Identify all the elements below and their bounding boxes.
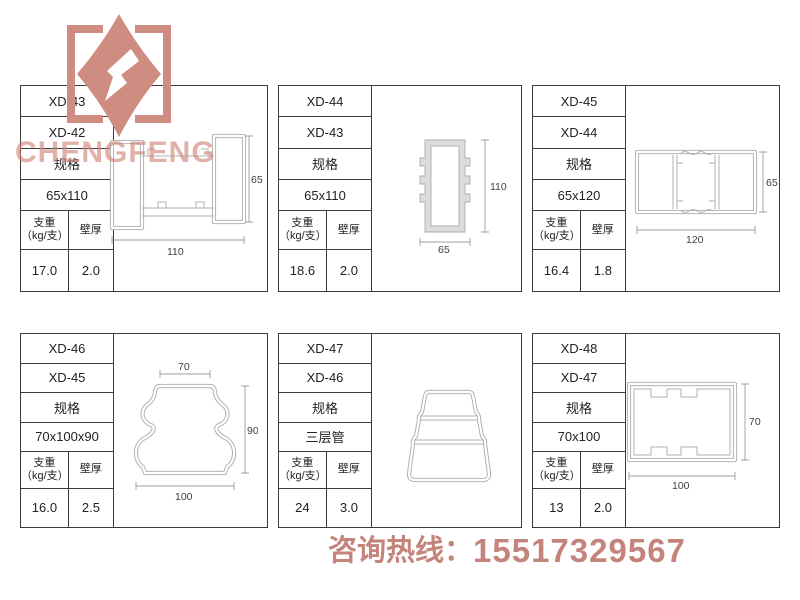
spec-label: 规格 [21, 393, 113, 423]
weight-unit-label: （kg/支） [21, 470, 68, 483]
model-secondary: XD-47 [533, 364, 625, 394]
spec-table-6: XD-48 XD-47 规格 70x100 支重（kg/支） 壁厚 13 2.0 [533, 334, 626, 527]
weight-thickness-header: 支重（kg/支） 壁厚 [279, 211, 371, 250]
size-value: 65x110 [279, 180, 371, 211]
weight-value: 24 [279, 489, 327, 527]
size-value: 70x100x90 [21, 423, 113, 453]
product-card-2: XD-44 XD-43 规格 65x110 支重（kg/支） 壁厚 18.6 2… [278, 85, 522, 292]
weight-unit-label: （kg/支） [533, 470, 580, 483]
thickness-value: 2.5 [69, 489, 113, 527]
model-primary: XD-44 [279, 86, 371, 117]
product-card-5: XD-47 XD-46 规格 三层管 支重（kg/支） 壁厚 24 3.0 [278, 333, 522, 528]
weight-thickness-values: 17.0 2.0 [21, 250, 113, 291]
spec-table-4: XD-46 XD-45 规格 70x100x90 支重（kg/支） 壁厚 16.… [21, 334, 114, 527]
weight-thickness-values: 16.4 1.8 [533, 250, 625, 291]
spec-label: 规格 [21, 149, 113, 180]
weight-label: 支重 [545, 457, 567, 470]
model-primary: XD-45 [533, 86, 625, 117]
thickness-value: 2.0 [581, 489, 625, 527]
weight-thickness-values: 18.6 2.0 [279, 250, 371, 291]
weight-thickness-header: 支重（kg/支） 壁厚 [533, 452, 625, 489]
thickness-value: 1.8 [581, 250, 625, 291]
weight-unit-label: （kg/支） [533, 230, 580, 243]
weight-label: 支重 [33, 457, 55, 470]
model-primary: XD-48 [533, 334, 625, 364]
hotline: 咨询热线：15517329567 [328, 527, 686, 570]
thickness-label: 壁厚 [69, 452, 113, 488]
dim-width: 100 [672, 480, 690, 492]
dim-width: 110 [167, 246, 184, 258]
weight-thickness-header: 支重（kg/支） 壁厚 [279, 452, 371, 489]
weight-thickness-values: 24 3.0 [279, 489, 371, 527]
spec-label: 规格 [279, 149, 371, 180]
weight-unit-label: （kg/支） [279, 230, 326, 243]
spec-label: 规格 [533, 149, 625, 180]
profile-drawing-gourd: 70 90 100 [113, 358, 258, 504]
weight-unit-label: （kg/支） [279, 470, 326, 483]
dim-width: 120 [686, 234, 704, 246]
thickness-label: 壁厚 [327, 452, 371, 488]
thickness-label: 壁厚 [327, 211, 371, 249]
dim-width: 100 [175, 491, 193, 503]
weight-value: 17.0 [21, 250, 69, 291]
dim-height: 110 [490, 181, 507, 193]
product-card-6: XD-48 XD-47 规格 70x100 支重（kg/支） 壁厚 13 2.0… [532, 333, 780, 528]
weight-label: 支重 [545, 217, 567, 230]
weight-label: 支重 [291, 457, 313, 470]
size-value: 65x110 [21, 180, 113, 211]
weight-label: 支重 [33, 217, 55, 230]
weight-thickness-header: 支重（kg/支） 壁厚 [533, 211, 625, 250]
thickness-label: 壁厚 [581, 452, 625, 488]
hotline-number: 15517329567 [473, 532, 686, 569]
size-value: 70x100 [533, 423, 625, 453]
profile-drawing-ribbed-tube: 110 65 [385, 134, 520, 256]
profile-drawing-three-tier-tube [374, 386, 524, 496]
weight-value: 16.0 [21, 489, 69, 527]
weight-thickness-header: 支重（kg/支） 壁厚 [21, 452, 113, 489]
model-secondary: XD-45 [21, 364, 113, 394]
size-value: 三层管 [279, 423, 371, 453]
weight-value: 13 [533, 489, 581, 527]
spec-table-2: XD-44 XD-43 规格 65x110 支重（kg/支） 壁厚 18.6 2… [279, 86, 372, 291]
dim-height: 70 [749, 416, 761, 428]
thickness-label: 壁厚 [581, 211, 625, 249]
weight-thickness-values: 13 2.0 [533, 489, 625, 527]
profile-drawing-notched-box: 70 100 [621, 376, 779, 494]
thickness-value: 3.0 [327, 489, 371, 527]
hotline-label: 咨询热线： [328, 535, 473, 567]
profile-drawing-h-section: 65 110 [103, 126, 265, 261]
dim-height: 90 [247, 425, 258, 437]
weight-value: 18.6 [279, 250, 327, 291]
product-card-4: XD-46 XD-45 规格 70x100x90 支重（kg/支） 壁厚 16.… [20, 333, 268, 528]
size-value: 65x120 [533, 180, 625, 211]
product-card-3: XD-45 XD-44 规格 65x120 支重（kg/支） 壁厚 16.4 1… [532, 85, 780, 292]
weight-thickness-header: 支重（kg/支） 壁厚 [21, 211, 113, 250]
thickness-value: 2.0 [327, 250, 371, 291]
spec-table-3: XD-45 XD-44 规格 65x120 支重（kg/支） 壁厚 16.4 1… [533, 86, 626, 291]
dim-height: 65 [766, 177, 778, 189]
dim-width: 65 [438, 244, 450, 256]
model-secondary: XD-43 [279, 117, 371, 148]
weight-unit-label: （kg/支） [21, 230, 68, 243]
spec-label: 规格 [533, 393, 625, 423]
chengfeng-logo-icon [57, 13, 182, 141]
dim-height: 65 [251, 174, 263, 186]
weight-label: 支重 [291, 217, 313, 230]
weight-thickness-values: 16.0 2.5 [21, 489, 113, 527]
model-primary: XD-46 [21, 334, 113, 364]
spec-label: 规格 [279, 393, 371, 423]
model-secondary: XD-44 [533, 117, 625, 148]
model-primary: XD-47 [279, 334, 371, 364]
model-secondary: XD-46 [279, 364, 371, 394]
dim-top: 70 [178, 361, 190, 373]
weight-value: 16.4 [533, 250, 581, 291]
spec-table-5: XD-47 XD-46 规格 三层管 支重（kg/支） 壁厚 24 3.0 [279, 334, 372, 527]
profile-drawing-wide-box: 65 120 [629, 138, 779, 248]
